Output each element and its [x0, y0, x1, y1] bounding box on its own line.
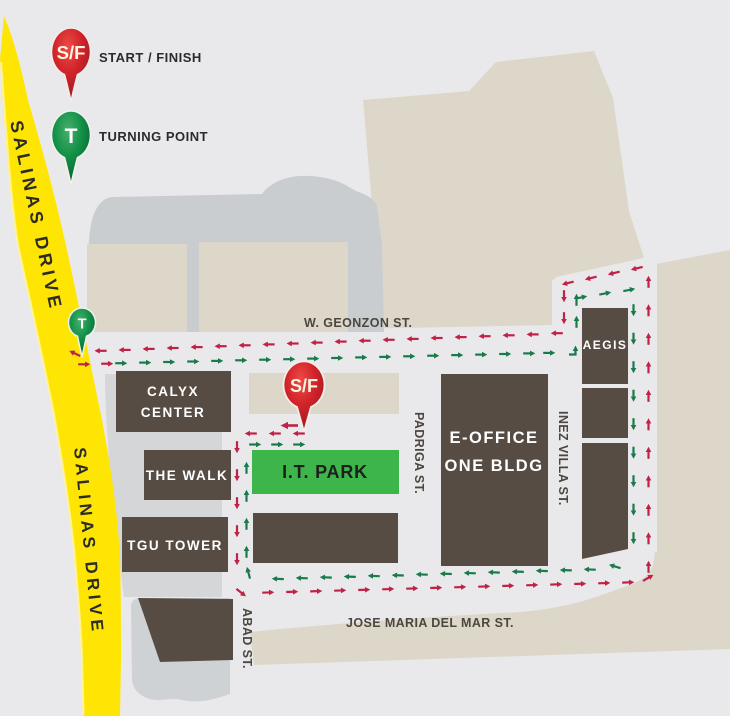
svg-text:CALYX: CALYX [147, 384, 199, 399]
svg-text:ABAD ST.: ABAD ST. [240, 608, 254, 669]
svg-text:TURNING POINT: TURNING POINT [99, 129, 208, 144]
svg-text:START / FINISH: START / FINISH [99, 50, 202, 65]
svg-text:THE WALK: THE WALK [146, 468, 229, 483]
svg-text:CENTER: CENTER [141, 405, 206, 420]
svg-text:AEGIS: AEGIS [583, 338, 628, 352]
svg-text:PADRIGA ST.: PADRIGA ST. [412, 412, 426, 494]
svg-text:E-OFFICE: E-OFFICE [450, 429, 539, 447]
svg-text:S/F: S/F [290, 376, 318, 396]
svg-text:T: T [65, 125, 78, 148]
svg-text:T: T [78, 317, 87, 333]
svg-text:ONE BLDG: ONE BLDG [444, 457, 543, 475]
svg-text:TGU TOWER: TGU TOWER [127, 538, 223, 553]
svg-text:I.T. PARK: I.T. PARK [282, 462, 368, 482]
svg-text:W. GEONZON ST.: W. GEONZON ST. [304, 316, 412, 330]
svg-text:JOSE MARIA DEL MAR ST.: JOSE MARIA DEL MAR ST. [346, 616, 514, 630]
svg-text:S/F: S/F [57, 42, 86, 63]
svg-text:INEZ VILLA ST.: INEZ VILLA ST. [556, 411, 570, 506]
